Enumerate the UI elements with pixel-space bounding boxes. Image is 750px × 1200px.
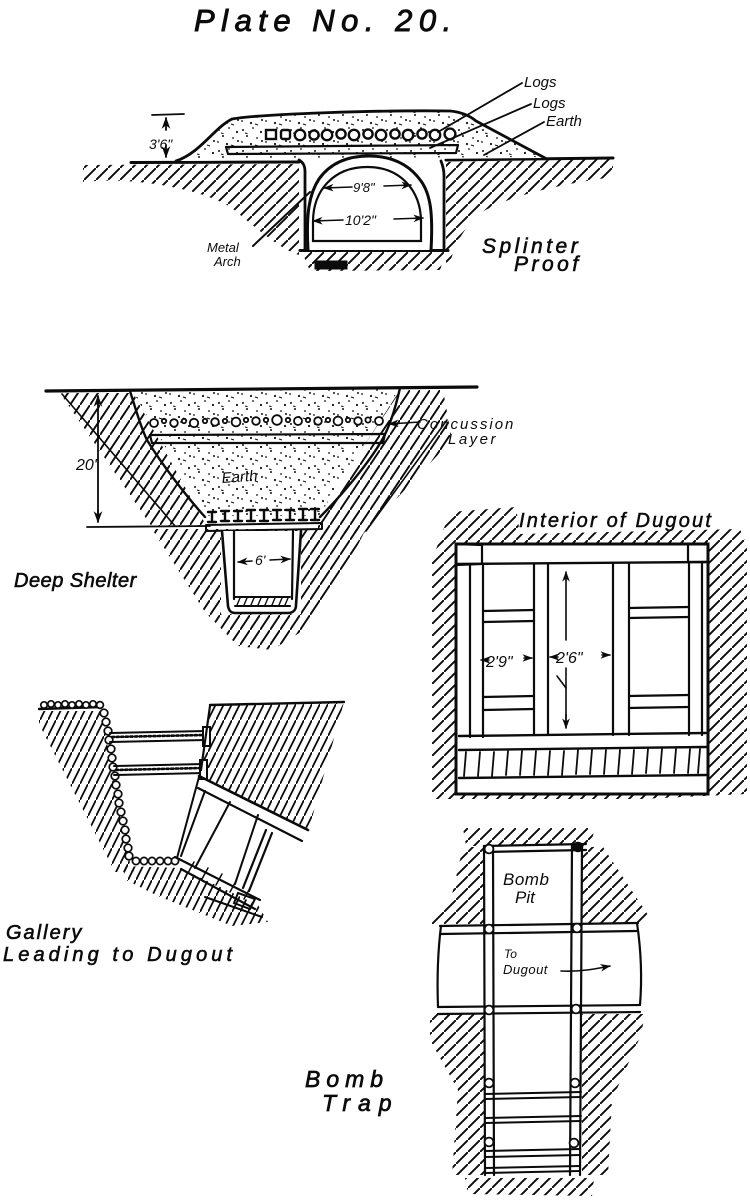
svg-text:Trap: Trap bbox=[322, 1090, 400, 1116]
svg-text:Earth: Earth bbox=[221, 468, 258, 487]
svg-text:To: To bbox=[504, 947, 517, 961]
svg-text:2'9": 2'9" bbox=[485, 654, 514, 671]
svg-text:2'6": 2'6" bbox=[555, 650, 584, 667]
svg-text:Arch: Arch bbox=[213, 254, 241, 269]
svg-text:Layer: Layer bbox=[448, 431, 498, 448]
svg-text:6': 6' bbox=[255, 552, 267, 568]
svg-text:Gallery: Gallery bbox=[6, 922, 83, 944]
svg-text:9'8": 9'8" bbox=[353, 180, 376, 195]
svg-text:Interior of Dugout: Interior of Dugout bbox=[519, 510, 713, 532]
svg-text:10'2": 10'2" bbox=[345, 212, 377, 228]
svg-text:Proof: Proof bbox=[514, 253, 582, 276]
svg-text:Pit: Pit bbox=[515, 888, 536, 907]
svg-text:Metal: Metal bbox=[207, 240, 240, 255]
svg-text:Earth: Earth bbox=[546, 113, 582, 130]
svg-text:Bomb: Bomb bbox=[503, 870, 549, 889]
svg-text:3'6": 3'6" bbox=[149, 136, 173, 152]
svg-text:Dugout: Dugout bbox=[503, 962, 549, 977]
svg-text:Logs: Logs bbox=[533, 95, 566, 112]
svg-text:Deep Shelter: Deep Shelter bbox=[14, 570, 138, 592]
svg-text:Plate No. 20.: Plate No. 20. bbox=[194, 3, 458, 38]
svg-text:Bomb: Bomb bbox=[305, 1066, 389, 1092]
svg-text:20': 20' bbox=[75, 457, 98, 474]
svg-text:Logs: Logs bbox=[524, 74, 557, 91]
svg-text:Leading to Dugout: Leading to Dugout bbox=[3, 944, 236, 966]
